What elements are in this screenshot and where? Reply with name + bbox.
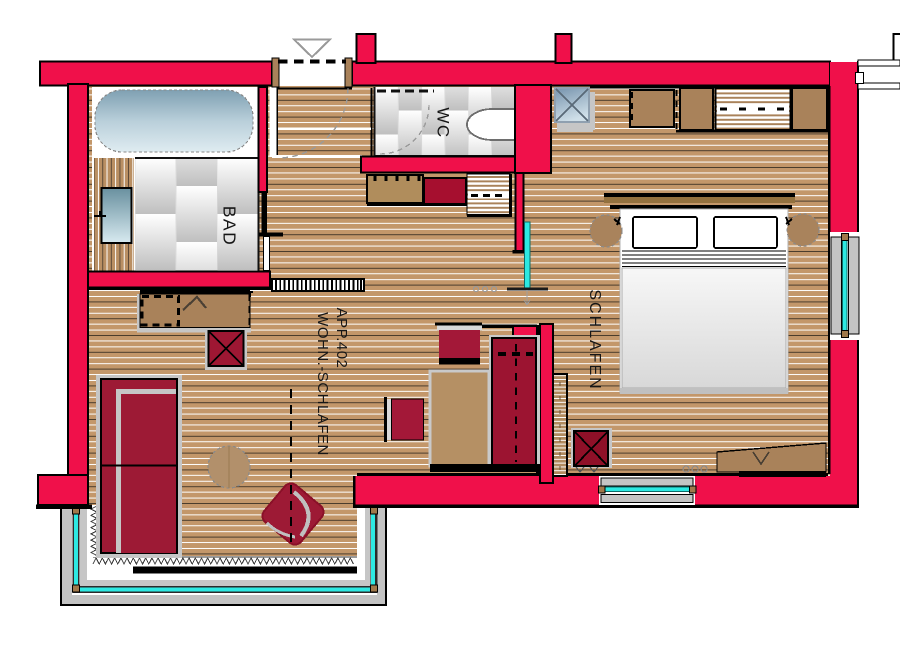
svg-text:SCHLAFEN: SCHLAFEN: [586, 289, 603, 390]
svg-text:WC: WC: [434, 107, 453, 138]
svg-text:APP.402: APP.402: [333, 308, 350, 369]
svg-text:BAD: BAD: [219, 206, 239, 246]
svg-text:WOHN.-SCHLAFEN: WOHN.-SCHLAFEN: [314, 312, 331, 456]
